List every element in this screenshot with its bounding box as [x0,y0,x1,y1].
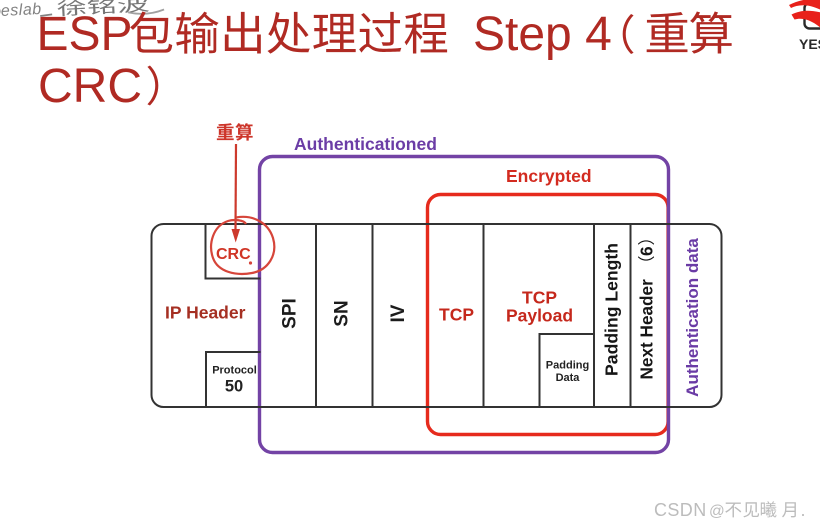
svg-text:YESL: YESL [799,36,820,52]
svg-text:SPI: SPI [280,298,301,329]
svg-text:CRC: CRC [38,60,142,113]
svg-text:CRC: CRC [216,246,251,263]
svg-text:TCP: TCP [439,305,474,325]
svg-text:Authentication data: Authentication data [683,238,702,397]
svg-text:Protocol: Protocol [212,365,257,377]
svg-text:Data: Data [556,372,581,384]
svg-text:TCP: TCP [522,288,557,308]
svg-text:Step 4: Step 4 [473,8,612,61]
svg-text:@: @ [709,503,725,520]
svg-text:50: 50 [225,378,243,396]
svg-text:Padding Length: Padding Length [602,243,622,376]
svg-text:CSDN: CSDN [654,500,707,520]
svg-text:Encrypted: Encrypted [506,166,592,186]
svg-text:ESP: ESP [37,8,133,61]
svg-text:IV: IV [388,304,409,322]
svg-text:Authenticationed: Authenticationed [294,134,437,154]
svg-text:Padding: Padding [546,360,589,372]
svg-text:IP Header: IP Header [165,303,246,323]
svg-text:Next Header: Next Header [637,279,657,380]
svg-text:.: . [801,500,806,520]
svg-text:6: 6 [637,246,657,256]
svg-text:Payload: Payload [506,306,573,326]
svg-text:SN: SN [332,300,353,326]
